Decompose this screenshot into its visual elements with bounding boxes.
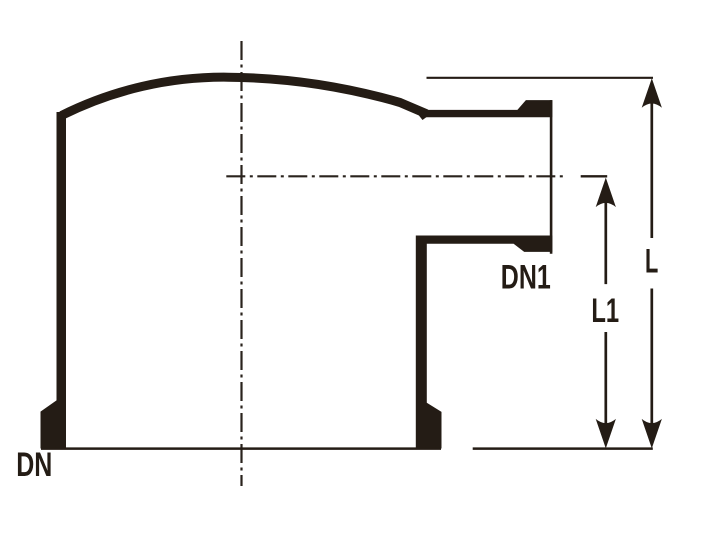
svg-text:L1: L1 bbox=[591, 292, 619, 330]
svg-text:DN: DN bbox=[16, 446, 52, 484]
svg-text:DN1: DN1 bbox=[501, 259, 551, 297]
svg-text:L: L bbox=[645, 243, 658, 281]
